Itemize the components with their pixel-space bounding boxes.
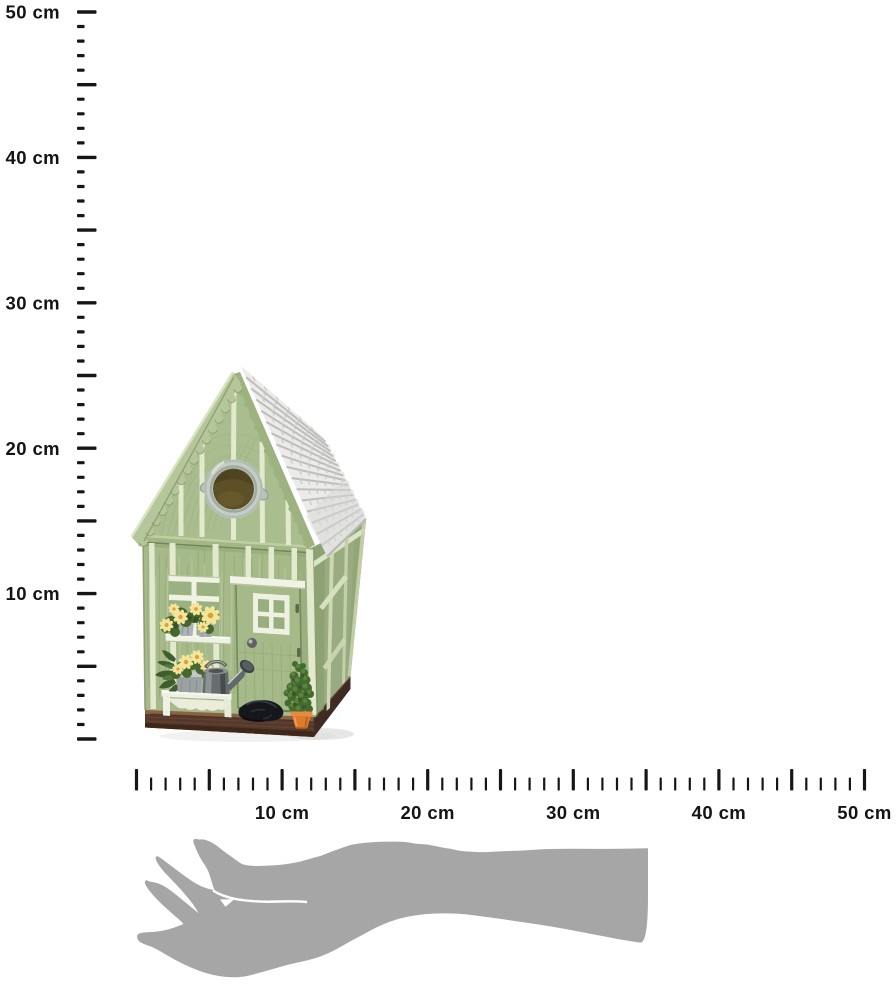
svg-text:10 cm: 10 cm — [255, 802, 309, 823]
svg-text:40 cm: 40 cm — [6, 147, 60, 168]
svg-text:40 cm: 40 cm — [692, 802, 746, 823]
svg-text:50 cm: 50 cm — [6, 2, 60, 23]
svg-text:30 cm: 30 cm — [6, 292, 60, 313]
svg-text:50 cm: 50 cm — [837, 802, 891, 823]
svg-text:30 cm: 30 cm — [546, 802, 600, 823]
svg-text:10 cm: 10 cm — [6, 583, 60, 604]
svg-text:20 cm: 20 cm — [400, 802, 454, 823]
svg-text:20 cm: 20 cm — [6, 438, 60, 459]
